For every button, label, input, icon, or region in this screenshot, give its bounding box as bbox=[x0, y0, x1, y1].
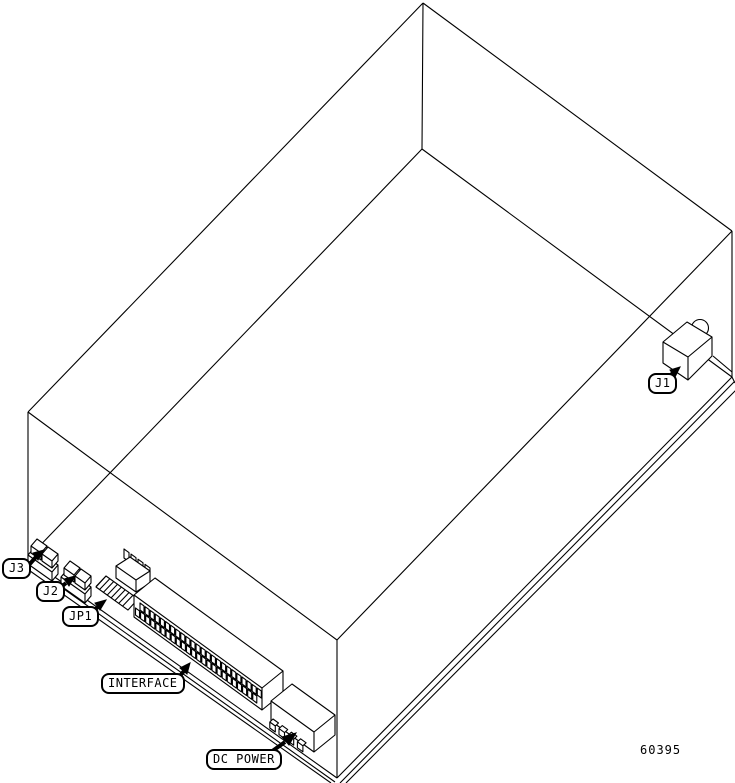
callout-label-dc-power: DC POWER bbox=[206, 749, 282, 770]
callout-label-j2: J2 bbox=[36, 581, 65, 602]
callout-label-jp1: JP1 bbox=[62, 606, 99, 627]
drive-isometric-drawing bbox=[0, 0, 735, 783]
chassis-top-edges bbox=[28, 3, 732, 640]
chassis-wireframe bbox=[28, 3, 732, 778]
figure-canvas: J3 J2 JP1 INTERFACE DC POWER J1 60395 bbox=[0, 0, 735, 783]
connector-j2 bbox=[61, 561, 91, 603]
callout-label-j3: J3 bbox=[2, 558, 31, 579]
callout-label-interface: INTERFACE bbox=[101, 673, 185, 694]
base-lip-right bbox=[340, 377, 735, 783]
callout-label-j1: J1 bbox=[648, 373, 677, 394]
connector-dc-power bbox=[270, 684, 335, 752]
figure-number: 60395 bbox=[640, 743, 681, 757]
chassis-vertical-edges bbox=[28, 3, 732, 778]
